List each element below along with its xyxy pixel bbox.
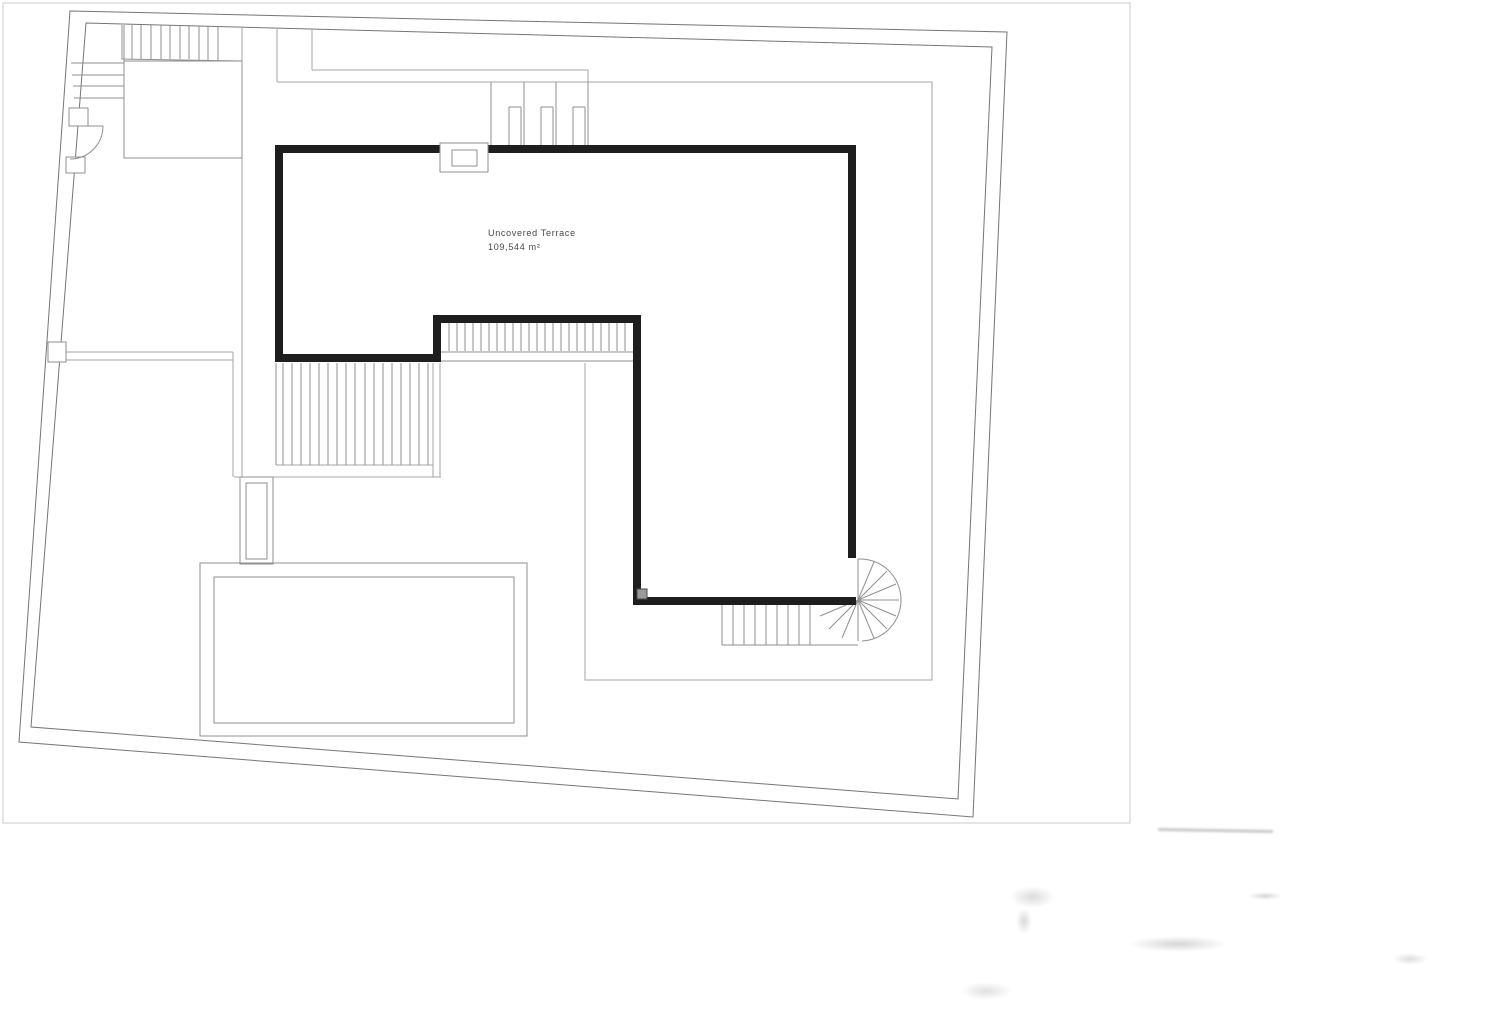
planter-outer <box>240 477 273 564</box>
room-area-label: 109,544 m² <box>488 242 541 252</box>
terrace-walls <box>275 145 856 605</box>
stair-terrace-mid <box>441 323 633 361</box>
wall-bottom-left <box>275 354 441 362</box>
door-jamb-top <box>69 108 88 126</box>
wall-notch-vertical <box>433 315 441 354</box>
pool-inner <box>214 577 514 723</box>
lower-level-outline <box>66 27 932 680</box>
gate-post <box>48 342 66 362</box>
property-boundary-outer <box>19 11 1007 817</box>
property-boundary <box>19 11 1007 817</box>
roof-vent-inner <box>452 150 477 166</box>
stair-terrace-bottom <box>722 605 858 645</box>
thin-elements <box>48 25 901 736</box>
room-label: Uncovered Terrace <box>488 228 576 238</box>
wall-left <box>275 153 283 362</box>
roof-vent <box>440 143 488 172</box>
corner-column <box>637 589 647 599</box>
planter-inner <box>246 483 267 559</box>
wall-right <box>848 153 856 558</box>
door-swing-arc <box>70 126 103 159</box>
property-boundary-offset <box>31 23 992 799</box>
room-top-left <box>124 61 242 158</box>
wall-top <box>275 145 856 153</box>
stair-top-left <box>122 25 242 61</box>
stair-winder <box>71 25 124 158</box>
stair-terrace-left <box>276 363 428 465</box>
drawing-sheet: Uncovered Terrace 109,544 m² <box>0 0 1500 1028</box>
setback-lines <box>66 27 932 680</box>
wall-inner-right <box>633 323 641 605</box>
sheet-frame <box>3 3 1130 823</box>
door-jamb-bottom <box>66 157 85 173</box>
wall-notch-horizontal <box>441 315 641 323</box>
wall-bottom <box>641 597 856 605</box>
upper-stair-detail <box>491 82 588 146</box>
pool-outer <box>200 563 527 736</box>
floor-plan-drawing: Uncovered Terrace 109,544 m² <box>0 0 1500 1028</box>
